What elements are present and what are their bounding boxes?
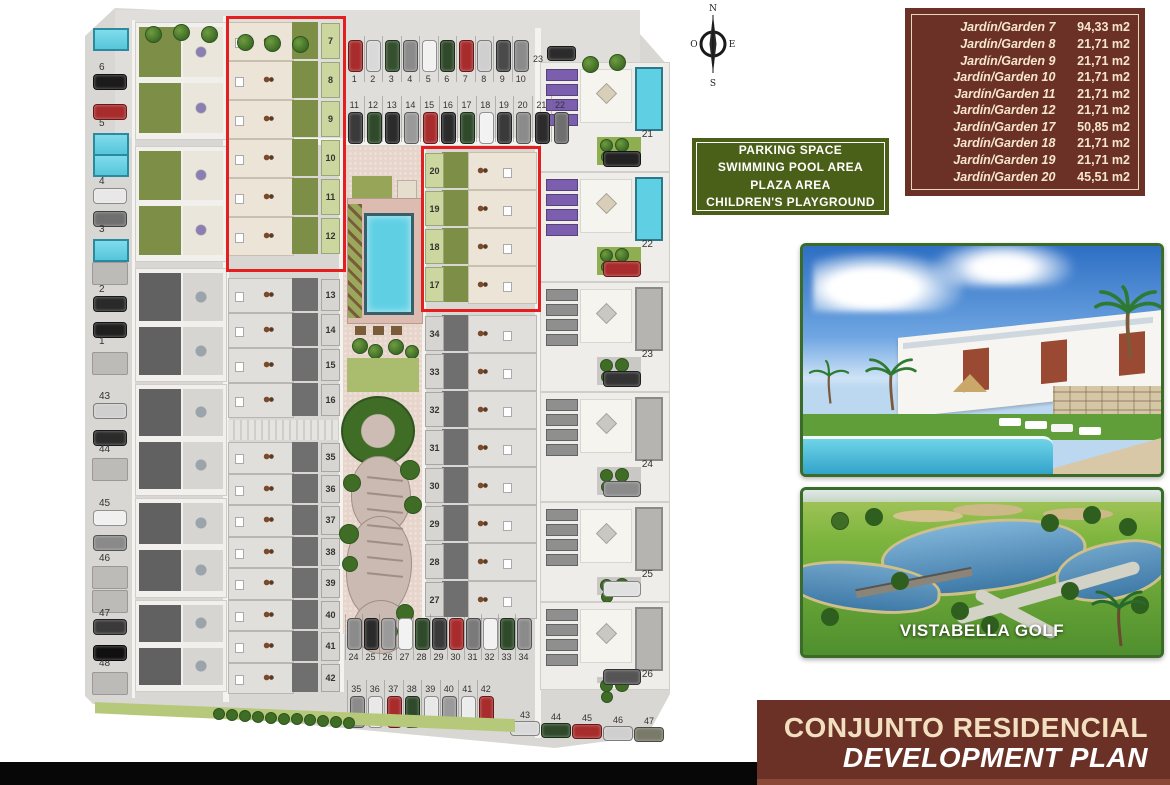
villa-patio (580, 179, 632, 233)
parasol-icon (195, 660, 207, 672)
villa-garden (139, 503, 181, 544)
garden-table-row: Jardín/Garden 2045,51 m2 (920, 168, 1130, 185)
parking-number: 37 (384, 684, 403, 694)
parasol-icon (195, 224, 207, 236)
parked-car (516, 112, 531, 144)
tree (352, 338, 368, 354)
parked-car (440, 40, 455, 72)
parked-car (364, 618, 379, 650)
parked-car (500, 618, 515, 650)
door-icon (235, 580, 244, 590)
unit-number-chip: 28 (425, 544, 444, 579)
parasol-icon (596, 303, 617, 324)
villa-pool (635, 507, 663, 571)
roof-panel (546, 319, 578, 331)
unit-house (228, 348, 294, 383)
tree (615, 468, 629, 482)
parked-car (459, 40, 474, 72)
parking-number: 6 (438, 74, 457, 84)
unit-garden (292, 663, 318, 693)
unit-house (468, 429, 537, 467)
parking-number: 6 (99, 62, 121, 73)
parked-car (348, 112, 363, 144)
garden-size-value: 21,71 m2 (1055, 87, 1130, 101)
highlight-box-units-17-20 (421, 146, 541, 312)
parked-car (347, 618, 362, 650)
door-icon (503, 369, 512, 379)
private-pool (93, 239, 129, 262)
amenity-line: PLAZA AREA (750, 177, 830, 194)
garden-label: Jardín/Garden 19 (920, 153, 1055, 167)
unit-house (468, 353, 537, 391)
bottom-black-bar (0, 762, 757, 785)
parasol-icon (596, 523, 617, 544)
unit-row: 37 (228, 505, 339, 535)
parking-number: 11 (345, 100, 364, 110)
parked-car (554, 112, 569, 144)
parking-number: 2 (364, 74, 383, 84)
parking-number: 45 (575, 713, 599, 723)
unit-number-chip: 35 (321, 443, 340, 472)
parasol-icon (596, 623, 617, 644)
table-chairs-icon (477, 367, 489, 376)
villa-pool (635, 287, 663, 351)
unit-house (468, 391, 537, 429)
parked-car (93, 296, 127, 312)
parked-car (634, 727, 664, 742)
highlight-box-units-7-12 (226, 16, 346, 272)
pool-photo (800, 243, 1164, 477)
villa-garden (139, 83, 181, 133)
garden-size-value: 21,71 m2 (1055, 153, 1130, 167)
compass-east-label: E (729, 40, 736, 50)
parking-number: 43 (99, 391, 121, 402)
garden-size-value: 50,85 m2 (1055, 120, 1130, 134)
unit-house (228, 663, 294, 695)
hedge-bush (226, 709, 238, 721)
garden-table-row: Jardín/Garden 1121,71 m2 (920, 85, 1130, 102)
parked-car (603, 261, 641, 277)
parking-number: 26 (379, 652, 396, 662)
unit-garden (292, 278, 318, 311)
palm-tree-icon (1091, 264, 1164, 384)
unit-number-chip: 37 (321, 506, 340, 535)
parking-number: 21 (532, 100, 551, 110)
parked-car (603, 481, 641, 497)
unit-garden (292, 505, 318, 535)
door-icon (235, 675, 244, 685)
door-icon (235, 612, 244, 622)
unit-house (228, 537, 294, 569)
villa-patio (183, 151, 223, 200)
parked-car (603, 151, 641, 167)
unit-garden (292, 474, 318, 504)
table-chairs-icon (263, 547, 275, 556)
roof-panel (546, 429, 578, 441)
parked-car (403, 40, 418, 72)
garden-table-row: Jardín/Garden 921,71 m2 (920, 52, 1130, 69)
parking-number: 36 (366, 684, 385, 694)
unit-number-chip: 27 (425, 582, 444, 617)
table-chairs-icon (263, 578, 275, 587)
unit-garden (442, 429, 468, 465)
garden-label: Jardín/Garden 12 (920, 103, 1055, 117)
unit-house (228, 313, 294, 348)
villa-pool (635, 607, 663, 671)
parasol-icon (195, 345, 207, 357)
parked-car (496, 40, 511, 72)
parking-number: 19 (495, 100, 514, 110)
unit-number-chip: 29 (425, 506, 444, 541)
parking-number: 17 (457, 100, 476, 110)
parked-car (514, 40, 529, 72)
parked-car (483, 618, 498, 650)
parked-car (93, 535, 127, 551)
parked-car (460, 112, 475, 144)
roof-panel (546, 334, 578, 346)
unit-row: 38 (228, 537, 339, 567)
development-plan-page: 654321434445464748 789101112131415163536… (0, 0, 1170, 785)
compass-north-label: N (709, 4, 717, 14)
parking-number: 24 (345, 652, 362, 662)
villa-patio (183, 442, 223, 489)
garden-label: Jardín/Garden 11 (920, 87, 1055, 101)
unit-garden (292, 442, 318, 472)
photo-swimming-pool (803, 436, 1053, 477)
table-chairs-icon (263, 484, 275, 493)
door-icon (503, 483, 512, 493)
unit-garden (292, 313, 318, 346)
villa-pool (635, 67, 663, 131)
table-chairs-icon (263, 290, 275, 299)
parasol-icon (195, 459, 207, 471)
hedge-bush (330, 716, 342, 728)
villa-plot (135, 600, 227, 692)
empty-plot (92, 672, 128, 695)
banner-accent-strip (757, 779, 1170, 785)
unit-house (228, 474, 294, 506)
parking-number: 44 (544, 712, 568, 722)
unit-row: 13 (228, 278, 339, 311)
amenity-line: PARKING SPACE (739, 142, 842, 159)
parked-car (441, 112, 456, 144)
unit-number-chip: 36 (321, 475, 340, 504)
hedge-bush (278, 713, 290, 725)
tree (615, 358, 629, 372)
shrub (400, 460, 420, 480)
table-chairs-icon (477, 481, 489, 490)
garden-label: Jardín/Garden 8 (920, 37, 1055, 51)
tree (615, 248, 629, 262)
villa-garden (139, 605, 181, 642)
plaza-lawn (347, 358, 419, 392)
parasol-icon (195, 46, 207, 58)
villa-card-23: 23 (540, 282, 670, 392)
garden-label: Jardín/Garden 7 (920, 20, 1055, 34)
garden-table-row: Jardín/Garden 1750,85 m2 (920, 119, 1130, 136)
villa-patio (183, 503, 223, 544)
table-chairs-icon (263, 515, 275, 524)
parking-number: 47 (99, 608, 121, 619)
parasol-icon (195, 564, 207, 576)
parked-car (93, 74, 127, 90)
garden-label: Jardín/Garden 18 (920, 136, 1055, 150)
golf-photo: VISTABELLA GOLF (800, 487, 1164, 658)
villa-patio (183, 389, 223, 436)
unit-row: 32 (425, 391, 535, 427)
unit-row: 35 (228, 442, 339, 472)
palm-tree-icon (863, 342, 919, 426)
villa-patio (183, 648, 223, 685)
table-chairs-icon (477, 405, 489, 414)
garden-size-value: 21,71 m2 (1055, 54, 1130, 68)
amenity-line: CHILDREN'S PLAYGROUND (706, 194, 875, 211)
garden-size-value: 21,71 m2 (1055, 103, 1130, 117)
banner-title-es: CONJUNTO RESIDENCIAL (784, 713, 1148, 742)
parking-number: 13 (382, 100, 401, 110)
hedge-bush (252, 711, 264, 723)
unit-row: 28 (425, 543, 535, 579)
table-chairs-icon (263, 610, 275, 619)
table-chairs-icon (263, 395, 275, 404)
door-icon (503, 331, 512, 341)
villa-garden (139, 389, 181, 436)
parked-car (466, 618, 481, 650)
roof-panel (546, 509, 578, 521)
unit-row: 39 (228, 568, 339, 598)
roof-panel (546, 639, 578, 651)
villa-plot (135, 384, 227, 496)
garden-table-row: Jardín/Garden 1821,71 m2 (920, 135, 1130, 152)
parked-car (517, 618, 532, 650)
parasol-icon (195, 406, 207, 418)
roof-panel (546, 224, 578, 236)
parking-number: 1 (99, 336, 121, 347)
table-chairs-icon (263, 673, 275, 682)
unit-row: 14 (228, 313, 339, 346)
tree (201, 26, 218, 43)
parked-car (93, 510, 127, 526)
unit-garden (442, 543, 468, 579)
table-chairs-icon (477, 443, 489, 452)
garden-table-row: Jardín/Garden 1221,71 m2 (920, 102, 1130, 119)
roof-panel (546, 554, 578, 566)
roof-panel (546, 179, 578, 191)
roof-panel (546, 609, 578, 621)
parking-number: 14 (401, 100, 420, 110)
garden-sizes-table: Jardín/Garden 794,33 m2Jardín/Garden 821… (905, 8, 1145, 196)
unit-row: 27 (425, 581, 535, 617)
parked-car (381, 618, 396, 650)
unit-row: 15 (228, 348, 339, 381)
unit-row: 42 (228, 663, 339, 693)
golf-bunkers (953, 504, 1023, 516)
parking-number: 38 (403, 684, 422, 694)
roof-panel (546, 654, 578, 666)
parked-car (535, 112, 550, 144)
parasol-icon (596, 193, 617, 214)
door-icon (503, 407, 512, 417)
garden-size-value: 21,71 m2 (1055, 136, 1130, 150)
tree (615, 138, 629, 152)
door-icon (235, 549, 244, 559)
door-icon (235, 517, 244, 527)
villa-garden (139, 273, 181, 321)
communal-pool (364, 213, 414, 315)
roof-panel (546, 84, 578, 96)
parking-number: 34 (515, 652, 532, 662)
unit-house (468, 543, 537, 581)
unit-row: 29 (425, 505, 535, 541)
tree (405, 345, 419, 359)
unit-row: 30 (425, 467, 535, 503)
door-icon (503, 521, 512, 531)
villa-patio (183, 327, 223, 375)
parking-number: 4 (401, 74, 420, 84)
unit-house (468, 505, 537, 543)
unit-house (228, 600, 294, 632)
unit-row: 31 (425, 429, 535, 465)
villa-garden (139, 550, 181, 591)
table-chairs-icon (477, 519, 489, 528)
unit-house (228, 631, 294, 663)
golf-photo-caption: VISTABELLA GOLF (803, 621, 1161, 641)
unit-row: 41 (228, 631, 339, 661)
parked-car (497, 112, 512, 144)
door-icon (235, 486, 244, 496)
villa-plot (135, 268, 227, 382)
parking-number: 5 (99, 118, 121, 129)
amenity-line: SWIMMING POOL AREA (718, 159, 863, 176)
roof-panel (546, 69, 578, 81)
parking-number: 3 (382, 74, 401, 84)
unit-house (468, 467, 537, 505)
door-icon (503, 597, 512, 607)
parked-car (93, 619, 127, 635)
villa-pool (635, 177, 663, 241)
parking-number: 30 (447, 652, 464, 662)
door-icon (503, 559, 512, 569)
parking-number: 10 (512, 74, 531, 84)
unit-garden (292, 348, 318, 381)
parking-number: 48 (99, 658, 121, 669)
photo-cloud (933, 243, 1073, 286)
parking-number: 41 (458, 684, 477, 694)
parked-car (366, 40, 381, 72)
garden-size-value: 45,51 m2 (1055, 170, 1130, 184)
table-chairs-icon (477, 557, 489, 566)
door-icon (235, 362, 244, 372)
parking-number: 39 (421, 684, 440, 694)
door-icon (235, 643, 244, 653)
hedge-bush (343, 717, 355, 729)
parking-number: 31 (464, 652, 481, 662)
door-icon (235, 327, 244, 337)
parking-number: 20 (513, 100, 532, 110)
amenities-box: PARKING SPACESWIMMING POOL AREAPLAZA ARE… (692, 138, 889, 215)
parked-car (93, 188, 127, 204)
lounger-row (355, 326, 407, 335)
tree (582, 56, 599, 73)
parking-number: 12 (364, 100, 383, 110)
parking-number: 1 (345, 74, 364, 84)
garden-table-row: Jardín/Garden 1921,71 m2 (920, 152, 1130, 169)
parked-car (398, 618, 413, 650)
roof-panel (546, 399, 578, 411)
parked-car (603, 371, 641, 387)
villa-garden (139, 648, 181, 685)
unit-garden (442, 467, 468, 503)
amenities-lines: PARKING SPACESWIMMING POOL AREAPLAZA ARE… (696, 142, 885, 211)
parking-number: 15 (420, 100, 439, 110)
unit-row: 33 (425, 353, 535, 389)
villa-patio (580, 289, 632, 343)
tree (368, 344, 383, 359)
villa-patio (183, 206, 223, 255)
golf-horizon (803, 490, 1161, 502)
unit-house (228, 568, 294, 600)
unit-house (228, 383, 294, 418)
door-icon (503, 445, 512, 455)
parking-number: 43 (513, 710, 537, 720)
photo-sun-loungers (999, 418, 1021, 426)
empty-plot (92, 566, 128, 589)
unit-number-chip: 34 (425, 316, 444, 351)
unit-house (228, 505, 294, 537)
parked-car (404, 112, 419, 144)
roof-panel (546, 624, 578, 636)
unit-number-chip: 42 (321, 664, 340, 693)
tree (173, 24, 190, 41)
unit-number-chip: 33 (425, 354, 444, 389)
parking-number: 42 (477, 684, 496, 694)
site-plan: 654321434445464748 789101112131415163536… (85, 8, 670, 758)
villa-patio (183, 550, 223, 591)
parking-number: 7 (456, 74, 475, 84)
hedge-bush (213, 708, 225, 720)
empty-plot (92, 352, 128, 375)
villa-garden (139, 206, 181, 255)
parking-number: 46 (99, 553, 121, 564)
parasol-icon (195, 617, 207, 629)
garden-table-row: Jardín/Garden 794,33 m2 (920, 19, 1130, 36)
garden-size-value: 21,71 m2 (1055, 70, 1130, 84)
title-banner: CONJUNTO RESIDENCIAL DEVELOPMENT PLAN (757, 700, 1170, 785)
unit-garden (442, 505, 468, 541)
unit-number-chip: 39 (321, 569, 340, 598)
unit-garden (442, 391, 468, 427)
table-chairs-icon (263, 325, 275, 334)
parked-car (449, 618, 464, 650)
villa-patio (580, 69, 632, 123)
unit-garden (292, 631, 318, 661)
garden-size-value: 94,33 m2 (1055, 20, 1130, 34)
unit-row: 16 (228, 383, 339, 416)
parasol-icon (195, 517, 207, 529)
villa-card-26: 26 (540, 602, 670, 690)
garden-label: Jardín/Garden 17 (920, 120, 1055, 134)
parking-number: 23 (530, 54, 546, 65)
garden-label: Jardín/Garden 9 (920, 54, 1055, 68)
parking-number: 5 (419, 74, 438, 84)
unit-number-chip: 14 (321, 314, 340, 346)
villa-garden (139, 327, 181, 375)
roof-panel (546, 444, 578, 456)
door-icon (235, 292, 244, 302)
parked-car (603, 726, 633, 741)
parking-number: 35 (347, 684, 366, 694)
tree (145, 26, 162, 43)
